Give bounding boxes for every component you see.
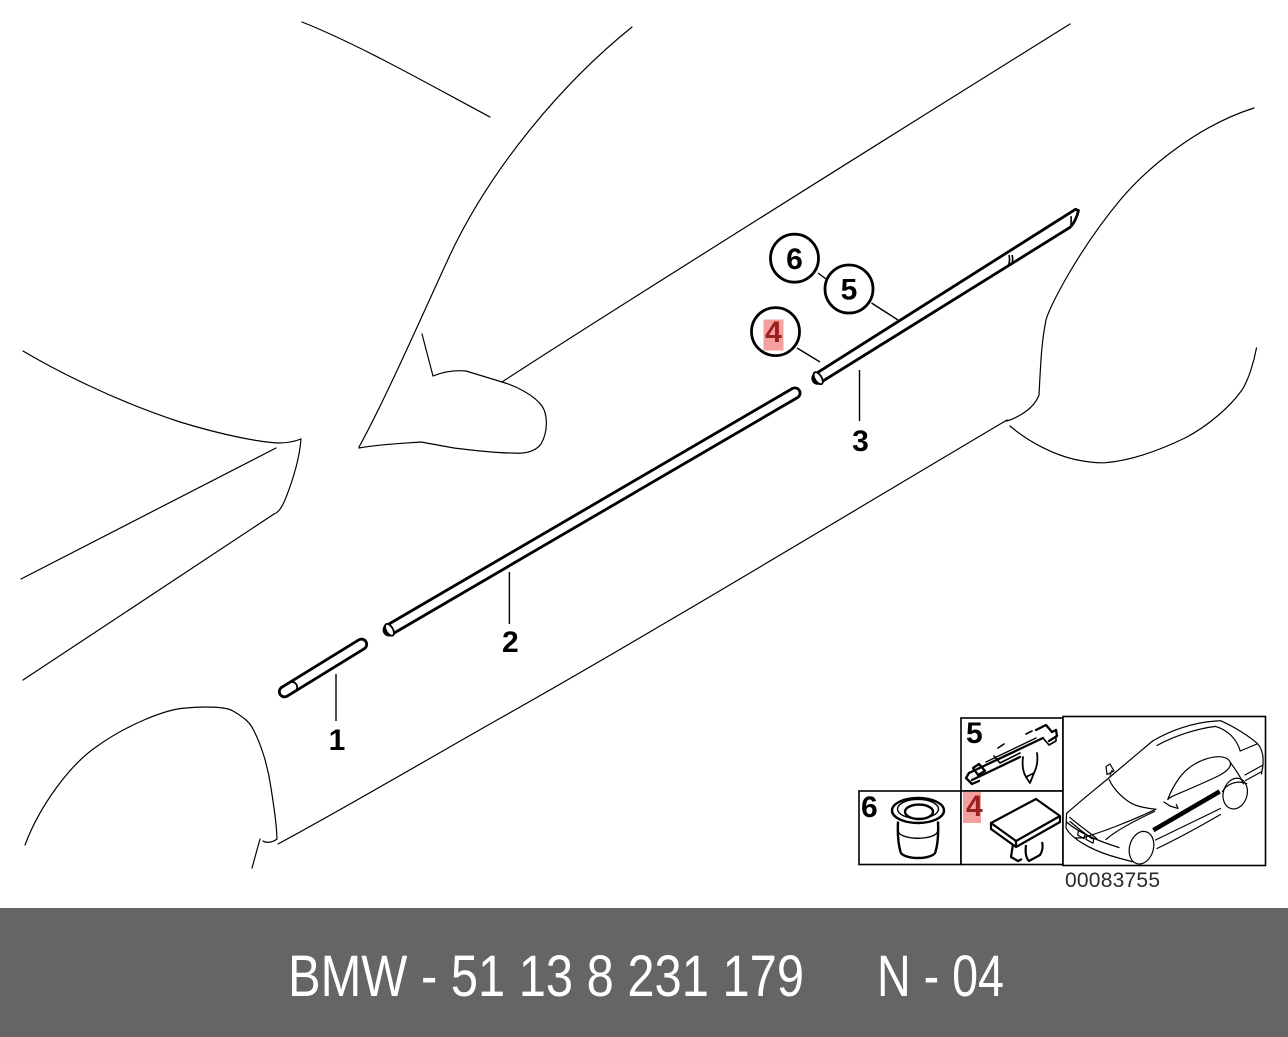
svg-text:1: 1 (329, 724, 346, 757)
svg-text:00083755: 00083755 (1065, 869, 1160, 892)
svg-text:5: 5 (841, 274, 858, 307)
svg-text:4: 4 (765, 316, 782, 349)
svg-text:5: 5 (966, 717, 983, 750)
svg-text:3: 3 (852, 425, 869, 458)
svg-text:BMW - 51 13 8 231 179: BMW - 51 13 8 231 179 (288, 944, 804, 1009)
svg-text:2: 2 (502, 626, 519, 659)
svg-text:4: 4 (966, 790, 983, 823)
svg-text:6: 6 (786, 243, 803, 276)
svg-text:6: 6 (861, 791, 878, 824)
svg-text:N - 04: N - 04 (877, 944, 1004, 1009)
